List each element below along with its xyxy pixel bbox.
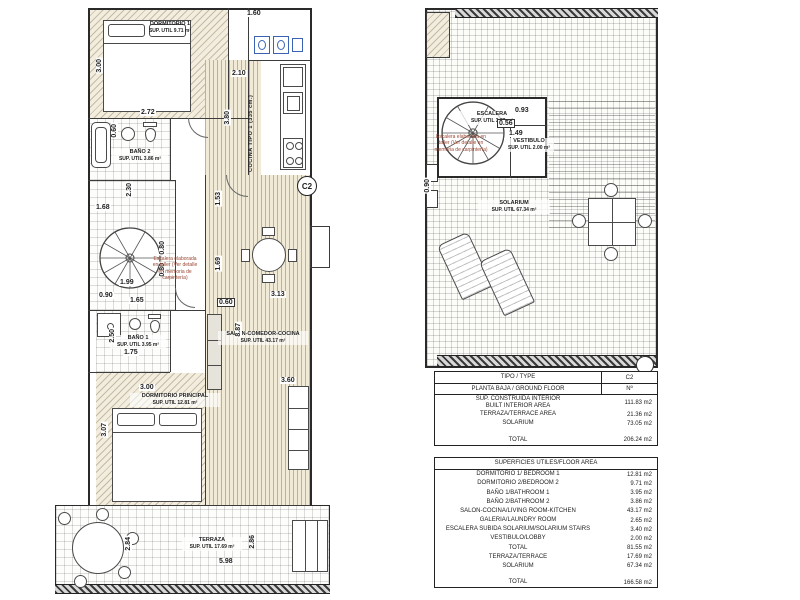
dim-label: 0.60 <box>217 298 235 307</box>
dim-label: 0.90 <box>424 178 431 194</box>
wall <box>88 8 90 505</box>
dim-label: 2.86 <box>249 534 256 550</box>
wall <box>205 175 206 505</box>
room-label-bano2: BAÑO 2 SUP. UTIL 3.86 m² <box>112 149 168 163</box>
balcony-step <box>310 226 330 268</box>
door-arc <box>175 288 195 308</box>
table-row: DORMITORIO 1/ BEDROOM 112.81 m2 <box>435 470 657 479</box>
wall <box>170 310 171 372</box>
unit-type-badge: C2 <box>297 176 317 196</box>
chair <box>96 508 109 521</box>
dim-label: 3.00 <box>96 58 103 74</box>
dim-label: 0.60 <box>111 123 118 139</box>
dim-label: 8.87 <box>235 322 242 338</box>
chair <box>58 512 71 525</box>
chair <box>262 274 275 283</box>
dim-label: 0.93 <box>514 107 530 114</box>
chair <box>604 183 618 197</box>
wall <box>170 118 171 180</box>
dim-label: 3.00 <box>139 384 155 391</box>
room-label-salon: SALÓN-COMEDOR-COCINA SUP. UTIL 43.17 m² <box>218 331 308 345</box>
stove <box>283 138 303 168</box>
dim-label: 3.80 <box>224 110 231 126</box>
table-row: SUP. CONSTRUIDA INTERIOR BUILT INTERIOR … <box>435 395 657 410</box>
dim-label: 1.65 <box>129 297 145 304</box>
wall <box>88 372 170 373</box>
sofa <box>288 386 309 470</box>
terrace-sofa <box>292 520 328 572</box>
washer-icon <box>273 36 289 54</box>
table-row: SOLARIUM67.34 m2 <box>435 562 657 571</box>
dim-label: 2.10 <box>231 70 247 77</box>
solarium-railing <box>437 355 656 367</box>
table-row: TOTAL81.55 m2 <box>435 544 657 553</box>
subheader-cell: PLANTA BAJA / GROUND FLOOR <box>435 386 601 393</box>
wall <box>248 60 310 61</box>
table-row: TERRAZA/TERRACE17.69 m2 <box>435 553 657 562</box>
laundry-sink-icon <box>292 38 303 52</box>
dim-label: 0.80 <box>159 240 166 256</box>
spiral-stair <box>440 100 506 166</box>
wall <box>228 8 229 118</box>
header-cell: TIPO / TYPE <box>435 374 601 381</box>
wall <box>510 125 547 126</box>
room-label-dormitorio-principal: DORMITORIO PRINCIPAL SUP. UTIL 12.81 m² <box>130 393 220 407</box>
chair <box>572 214 586 228</box>
table-row: BAÑO 1/BATHROOM 13.95 m2 <box>435 488 657 497</box>
table-row: SOLARIUM 73.05 m2 <box>435 419 657 428</box>
dim-label: 1.53 <box>215 191 222 207</box>
ground-floor-plan: DORMITORIO 1 SUP. UTIL 9.71 m² BAÑO 2 SU… <box>0 0 400 600</box>
table-row: TERRAZA/TERRACE AREA 21.36 m2 <box>435 410 657 419</box>
dim-label: 3.60 <box>280 377 296 384</box>
table-row: SALON-COCINA/LIVING ROOM-KITCHEN43.17 m2 <box>435 507 657 516</box>
dim-label: 5.98 <box>218 558 234 565</box>
wall <box>88 180 175 181</box>
pillow <box>117 413 155 426</box>
kitchen-sink <box>283 92 303 114</box>
dim-label: 2.84 <box>125 536 132 552</box>
blanket-line <box>113 432 201 433</box>
header-cell: SUPERFICIES UTILES/FLOOR AREA <box>435 460 657 467</box>
table-header-row: SUPERFICIES UTILES/FLOOR AREA <box>435 458 657 470</box>
table-spacer <box>435 571 657 578</box>
chair <box>638 214 652 228</box>
table-row: VESTIBULO/LOBBY2.00 m2 <box>435 534 657 543</box>
pillow <box>159 413 197 426</box>
dim-label: 0.56 <box>497 119 515 128</box>
carpentry-note: Escalera elaborada en taller (Ver detall… <box>434 134 488 153</box>
sink <box>129 318 141 330</box>
dim-label: 2.72 <box>140 109 156 116</box>
room-label-bano1: BAÑO 1 SUP. UTIL 3.95 m² <box>110 335 166 349</box>
room-label-vestibulo: VESTIBULO SUP. UTIL 2.00 m² <box>504 138 554 152</box>
table-row: DORMITORIO 2/BEDROOM 29.71 m2 <box>435 479 657 488</box>
dim-label: 3.07 <box>101 422 108 438</box>
dim-label: 1.60 <box>246 10 262 17</box>
tv-unit <box>207 314 222 390</box>
outdoor-table <box>588 198 636 246</box>
kitchen-label: COCINA TIPO 1 (335 cm.) <box>248 68 254 172</box>
floor-area-table: SUPERFICIES UTILES/FLOOR AREA DORMITORIO… <box>434 457 658 588</box>
terrace-railing <box>55 584 330 594</box>
chair <box>74 575 87 588</box>
dining-table <box>252 238 286 272</box>
dim-label: 2.30 <box>126 182 133 198</box>
table-row: ESCALERA SUBIDA SOLARIUM/SOLARIUM STAIRS… <box>435 525 657 534</box>
dim-label: 1.49 <box>508 130 524 137</box>
dim-label: 1.69 <box>215 256 222 272</box>
wall <box>88 8 310 10</box>
wall <box>88 310 205 311</box>
header-cell: C2 <box>601 372 657 383</box>
dim-label: 1.99 <box>119 279 135 286</box>
table-total-row: TOTAL 206.24 m2 <box>435 435 657 444</box>
chair <box>288 249 297 262</box>
table-total-row: TOTAL 166.58 m2 <box>435 578 657 587</box>
table-subheader-row: PLANTA BAJA / GROUND FLOOR Nº <box>435 384 657 395</box>
dim-label: 0.90 <box>98 292 114 299</box>
solarium-plan: ESCALERA SUP. UTIL 3.39 m² VESTIBULO SUP… <box>400 0 800 370</box>
toilet-tank <box>143 122 157 127</box>
sink <box>121 127 135 141</box>
room-label-solarium: SOLARIUM SUP. UTIL 67.34 m² <box>478 200 550 214</box>
type-summary-table: TIPO / TYPE C2 PLANTA BAJA / GROUND FLOO… <box>434 371 658 446</box>
kitchen-appliance <box>283 67 303 87</box>
blanket-line <box>104 43 190 44</box>
chair <box>241 249 250 262</box>
neighbor-block <box>426 12 450 58</box>
bed <box>112 408 202 502</box>
wall <box>88 505 310 506</box>
subheader-cell: Nº <box>601 384 657 394</box>
table-spacer <box>435 428 657 435</box>
room-label-dormitorio1: DORMITORIO 1 SUP. UTIL 9.71 m² <box>128 21 212 35</box>
floor-plan-sheet: DORMITORIO 1 SUP. UTIL 9.71 m² BAÑO 2 SU… <box>0 0 800 600</box>
toilet-tank <box>148 314 161 319</box>
dim-label: 1.75 <box>123 349 139 356</box>
top-parapet <box>455 8 658 18</box>
chair <box>262 227 275 236</box>
dim-label: 3.13 <box>270 291 286 298</box>
terrace-table <box>72 522 124 574</box>
room-label-terraza: TERRAZA SUP. UTIL 17.69 m² <box>182 537 242 551</box>
carpentry-note: Escalera elaborada en taller (Ver detall… <box>150 256 200 281</box>
table-row: GALERIA/LAUNDRY ROOM2.65 m2 <box>435 516 657 525</box>
door-arc <box>188 118 208 138</box>
chair <box>118 566 131 579</box>
dim-label: 2.50 <box>109 328 116 344</box>
table-row: BAÑO 2/BATHROOM 23.86 m2 <box>435 498 657 507</box>
table-header-row: TIPO / TYPE C2 <box>435 372 657 384</box>
bathtub <box>91 122 111 168</box>
chair <box>604 247 618 261</box>
washer-icon <box>254 36 270 54</box>
dim-label: 1.68 <box>95 204 111 211</box>
